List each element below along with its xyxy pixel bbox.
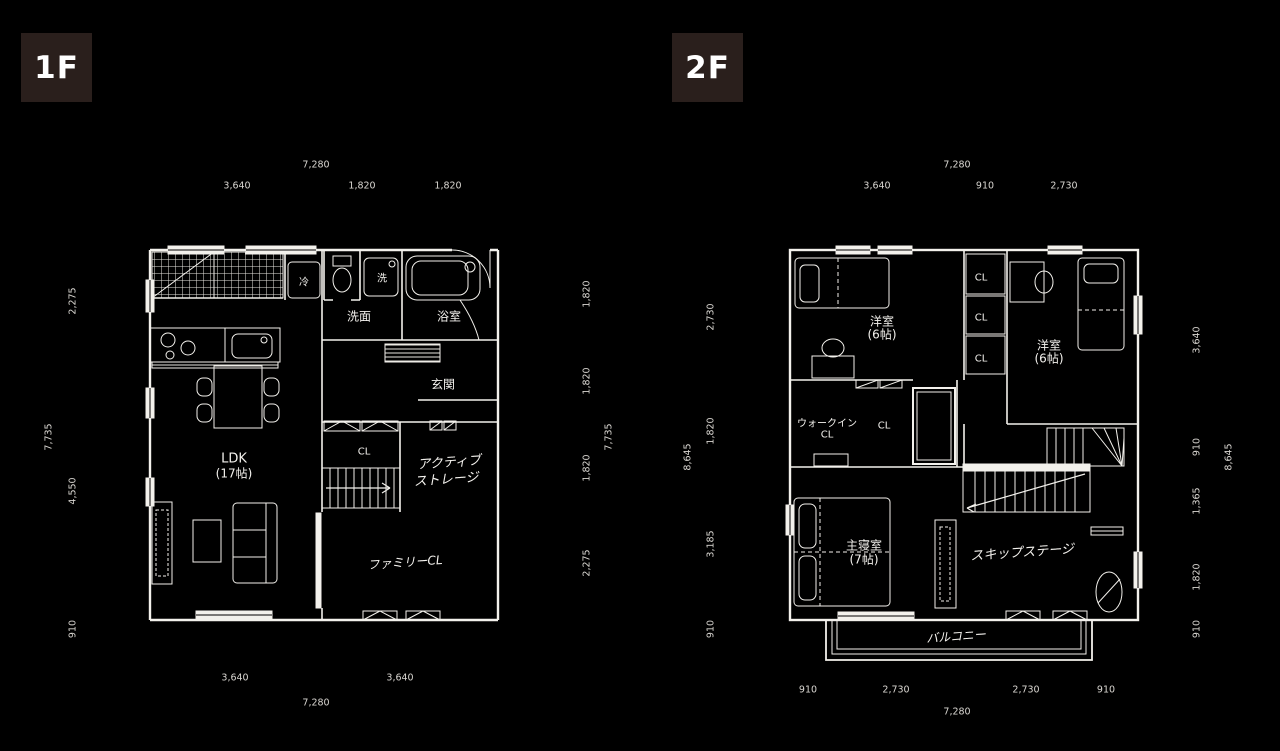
room-label-master-size: (7帖) — [850, 551, 879, 568]
floorplan-page: { "floor1": { "badge": "1F", "dims": { "… — [0, 0, 1280, 751]
dim-1f-right-total: 7,735 — [604, 423, 615, 450]
1f-low-table — [193, 520, 221, 562]
dim-2f-top-2: 910 — [976, 181, 994, 192]
1f-outer-walls — [150, 250, 498, 620]
dim-2f-left-2: 1,820 — [706, 417, 717, 444]
room-label-bath: 浴室 — [437, 308, 461, 325]
room-label-fridge: 冷 — [299, 274, 309, 289]
room-label-cl-2: CL — [975, 313, 988, 324]
1f-tv-board — [152, 502, 172, 584]
room-label-cl-1: CL — [975, 273, 988, 284]
2f-desk-left — [812, 339, 854, 378]
dim-1f-left-3: 910 — [68, 620, 79, 638]
dim-1f-right-1: 1,820 — [582, 280, 593, 307]
dim-1f-top-total: 7,280 — [302, 160, 329, 171]
room-label-cl-3: CL — [975, 354, 988, 365]
dim-2f-right-total: 8,645 — [1224, 443, 1235, 470]
dim-1f-right-4: 2,275 — [582, 549, 593, 576]
dim-1f-bottom-2: 3,640 — [386, 673, 413, 684]
room-label-entrance: 玄関 — [431, 376, 455, 393]
1f-shoe-cabinet — [385, 344, 440, 362]
2f-egg-chair — [1096, 572, 1122, 612]
dim-1f-top-2: 1,820 — [348, 181, 375, 192]
dim-2f-left-1: 2,730 — [706, 303, 717, 330]
dim-2f-left-total: 8,645 — [683, 443, 694, 470]
1f-family-closet-doors — [363, 611, 440, 620]
1f-toilet — [333, 256, 351, 292]
floor1-plan — [146, 246, 498, 620]
dim-1f-left-total: 7,735 — [44, 423, 55, 450]
2f-stair-void — [913, 388, 955, 464]
1f-deck — [152, 252, 283, 298]
dim-2f-right-3: 1,365 — [1192, 487, 1203, 514]
1f-interior-walls — [150, 250, 498, 620]
1f-sofa — [233, 503, 277, 583]
room-label-wic-line1: ウォークイン — [797, 415, 857, 430]
room-label-washroom: 洗面 — [347, 308, 371, 325]
dim-2f-right-2: 910 — [1192, 438, 1203, 456]
dim-2f-top-1: 3,640 — [863, 181, 890, 192]
dim-2f-bottom-1: 910 — [799, 685, 817, 696]
floor1-badge: 1F — [21, 33, 92, 102]
dim-1f-right-3: 1,820 — [582, 454, 593, 481]
room-label-bedroom-left-size: (6帖) — [868, 326, 897, 343]
1f-stairs — [322, 468, 400, 508]
dim-2f-right-4: 1,820 — [1192, 563, 1203, 590]
dim-1f-top-3: 1,820 — [434, 181, 461, 192]
dim-2f-top-total: 7,280 — [943, 160, 970, 171]
room-label-wic-cl: CL — [878, 421, 891, 432]
2f-balcony-doors — [1006, 611, 1087, 620]
2f-stairs-upper — [1047, 428, 1124, 466]
dim-1f-top-1: 3,640 — [223, 181, 250, 192]
floor2-badge: 2F — [672, 33, 743, 102]
2f-bed-right — [1078, 258, 1124, 350]
1f-kitchen — [150, 328, 280, 368]
dim-2f-right-5: 910 — [1192, 620, 1203, 638]
1f-dining-table — [197, 366, 279, 428]
dim-1f-left-2: 4,550 — [68, 477, 79, 504]
dim-2f-left-4: 910 — [706, 620, 717, 638]
2f-counter — [935, 520, 956, 608]
2f-desk-right — [1010, 262, 1053, 302]
dim-1f-left-1: 2,275 — [68, 287, 79, 314]
2f-bed-left — [795, 258, 889, 308]
2f-stairs-lower — [963, 464, 1090, 512]
dim-1f-bottom-1: 3,640 — [221, 673, 248, 684]
room-label-bedroom-right-size: (6帖) — [1035, 350, 1064, 367]
dim-1f-right-2: 1,820 — [582, 367, 593, 394]
dim-2f-bottom-2: 2,730 — [882, 685, 909, 696]
dim-2f-bottom-3: 2,730 — [1012, 685, 1039, 696]
dim-1f-bottom-total: 7,280 — [302, 698, 329, 709]
room-label-wic-line2: CL — [821, 430, 834, 441]
dim-2f-bottom-4: 910 — [1097, 685, 1115, 696]
room-label-1f-closet: CL — [358, 447, 371, 458]
dim-2f-left-3: 3,185 — [706, 530, 717, 557]
floor2-plan — [786, 246, 1142, 660]
1f-bathtub — [406, 256, 480, 340]
dim-2f-top-3: 2,730 — [1050, 181, 1077, 192]
dim-2f-bottom-total: 7,280 — [943, 707, 970, 718]
room-label-washer: 洗 — [377, 270, 387, 285]
2f-interior-walls — [790, 250, 1138, 467]
room-label-ldk-size: (17帖) — [216, 465, 253, 482]
floorplan-drawing — [0, 0, 1280, 751]
2f-shelf — [1091, 527, 1123, 535]
dim-2f-right-1: 3,640 — [1192, 326, 1203, 353]
1f-sliding-door — [316, 513, 321, 608]
